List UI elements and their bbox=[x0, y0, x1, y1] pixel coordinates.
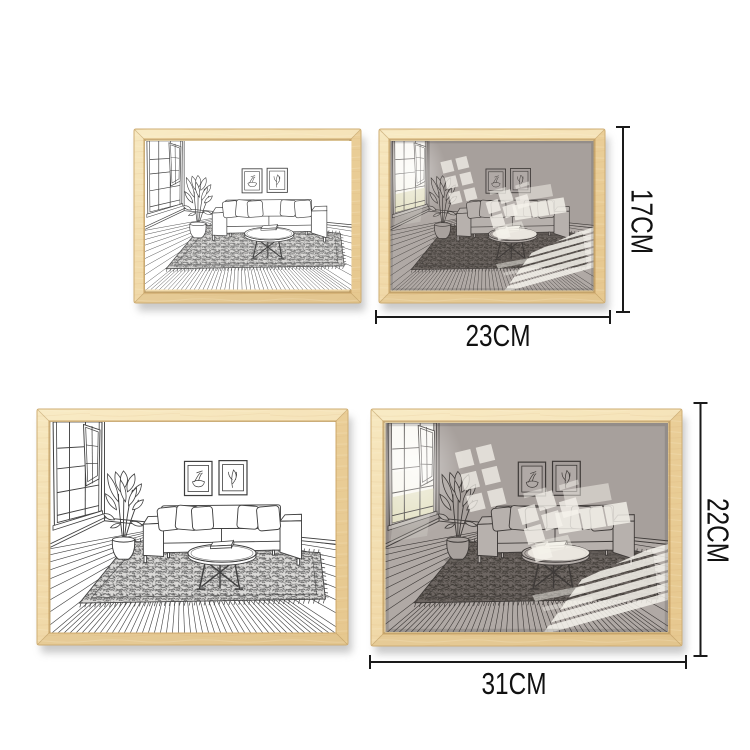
svg-text:31CM: 31CM bbox=[482, 666, 547, 701]
svg-text:17CM: 17CM bbox=[625, 189, 660, 254]
svg-text:22CM: 22CM bbox=[701, 498, 736, 563]
svg-text:23CM: 23CM bbox=[466, 318, 531, 353]
